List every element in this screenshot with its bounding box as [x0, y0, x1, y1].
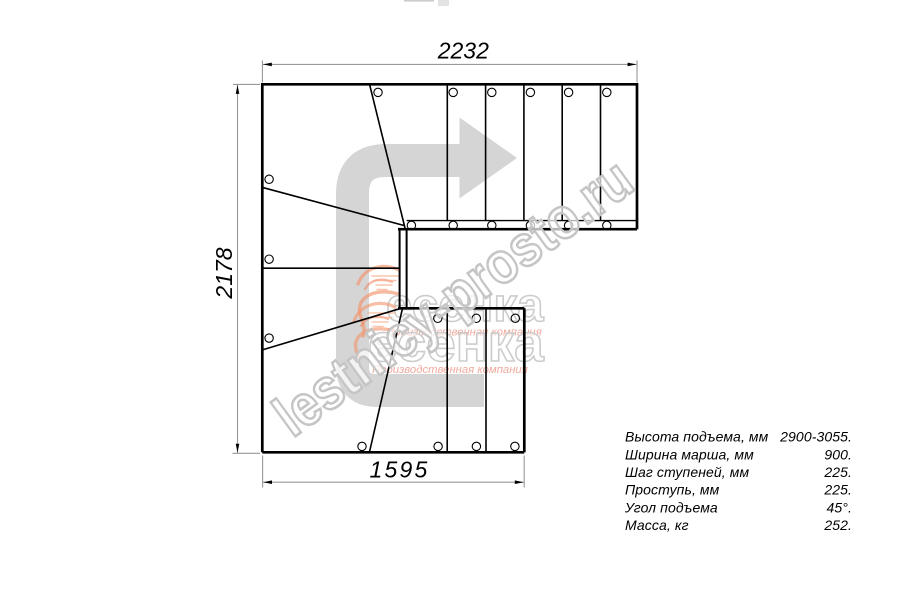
svg-text:225.: 225. [823, 464, 852, 480]
svg-text:1595: 1595 [370, 456, 430, 482]
svg-text:45°.: 45°. [827, 499, 852, 515]
svg-text:Шаг ступеней, мм: Шаг ступеней, мм [625, 464, 749, 480]
svg-text:Высота подъема, мм: Высота подъема, мм [625, 429, 769, 445]
svg-text:2232: 2232 [437, 38, 489, 64]
svg-text:2900-3055.: 2900-3055. [779, 429, 852, 445]
svg-text:Ширина марша, мм: Ширина марша, мм [625, 446, 754, 462]
svg-text:Проступь, мм: Проступь, мм [625, 482, 720, 498]
svg-text:2178: 2178 [211, 247, 237, 299]
svg-text:225.: 225. [823, 482, 852, 498]
svg-text:Масса, кг: Масса, кг [625, 517, 689, 533]
svg-text:900.: 900. [824, 446, 852, 462]
svg-text:252.: 252. [823, 517, 852, 533]
svg-text:Угол подъема: Угол подъема [624, 499, 718, 515]
